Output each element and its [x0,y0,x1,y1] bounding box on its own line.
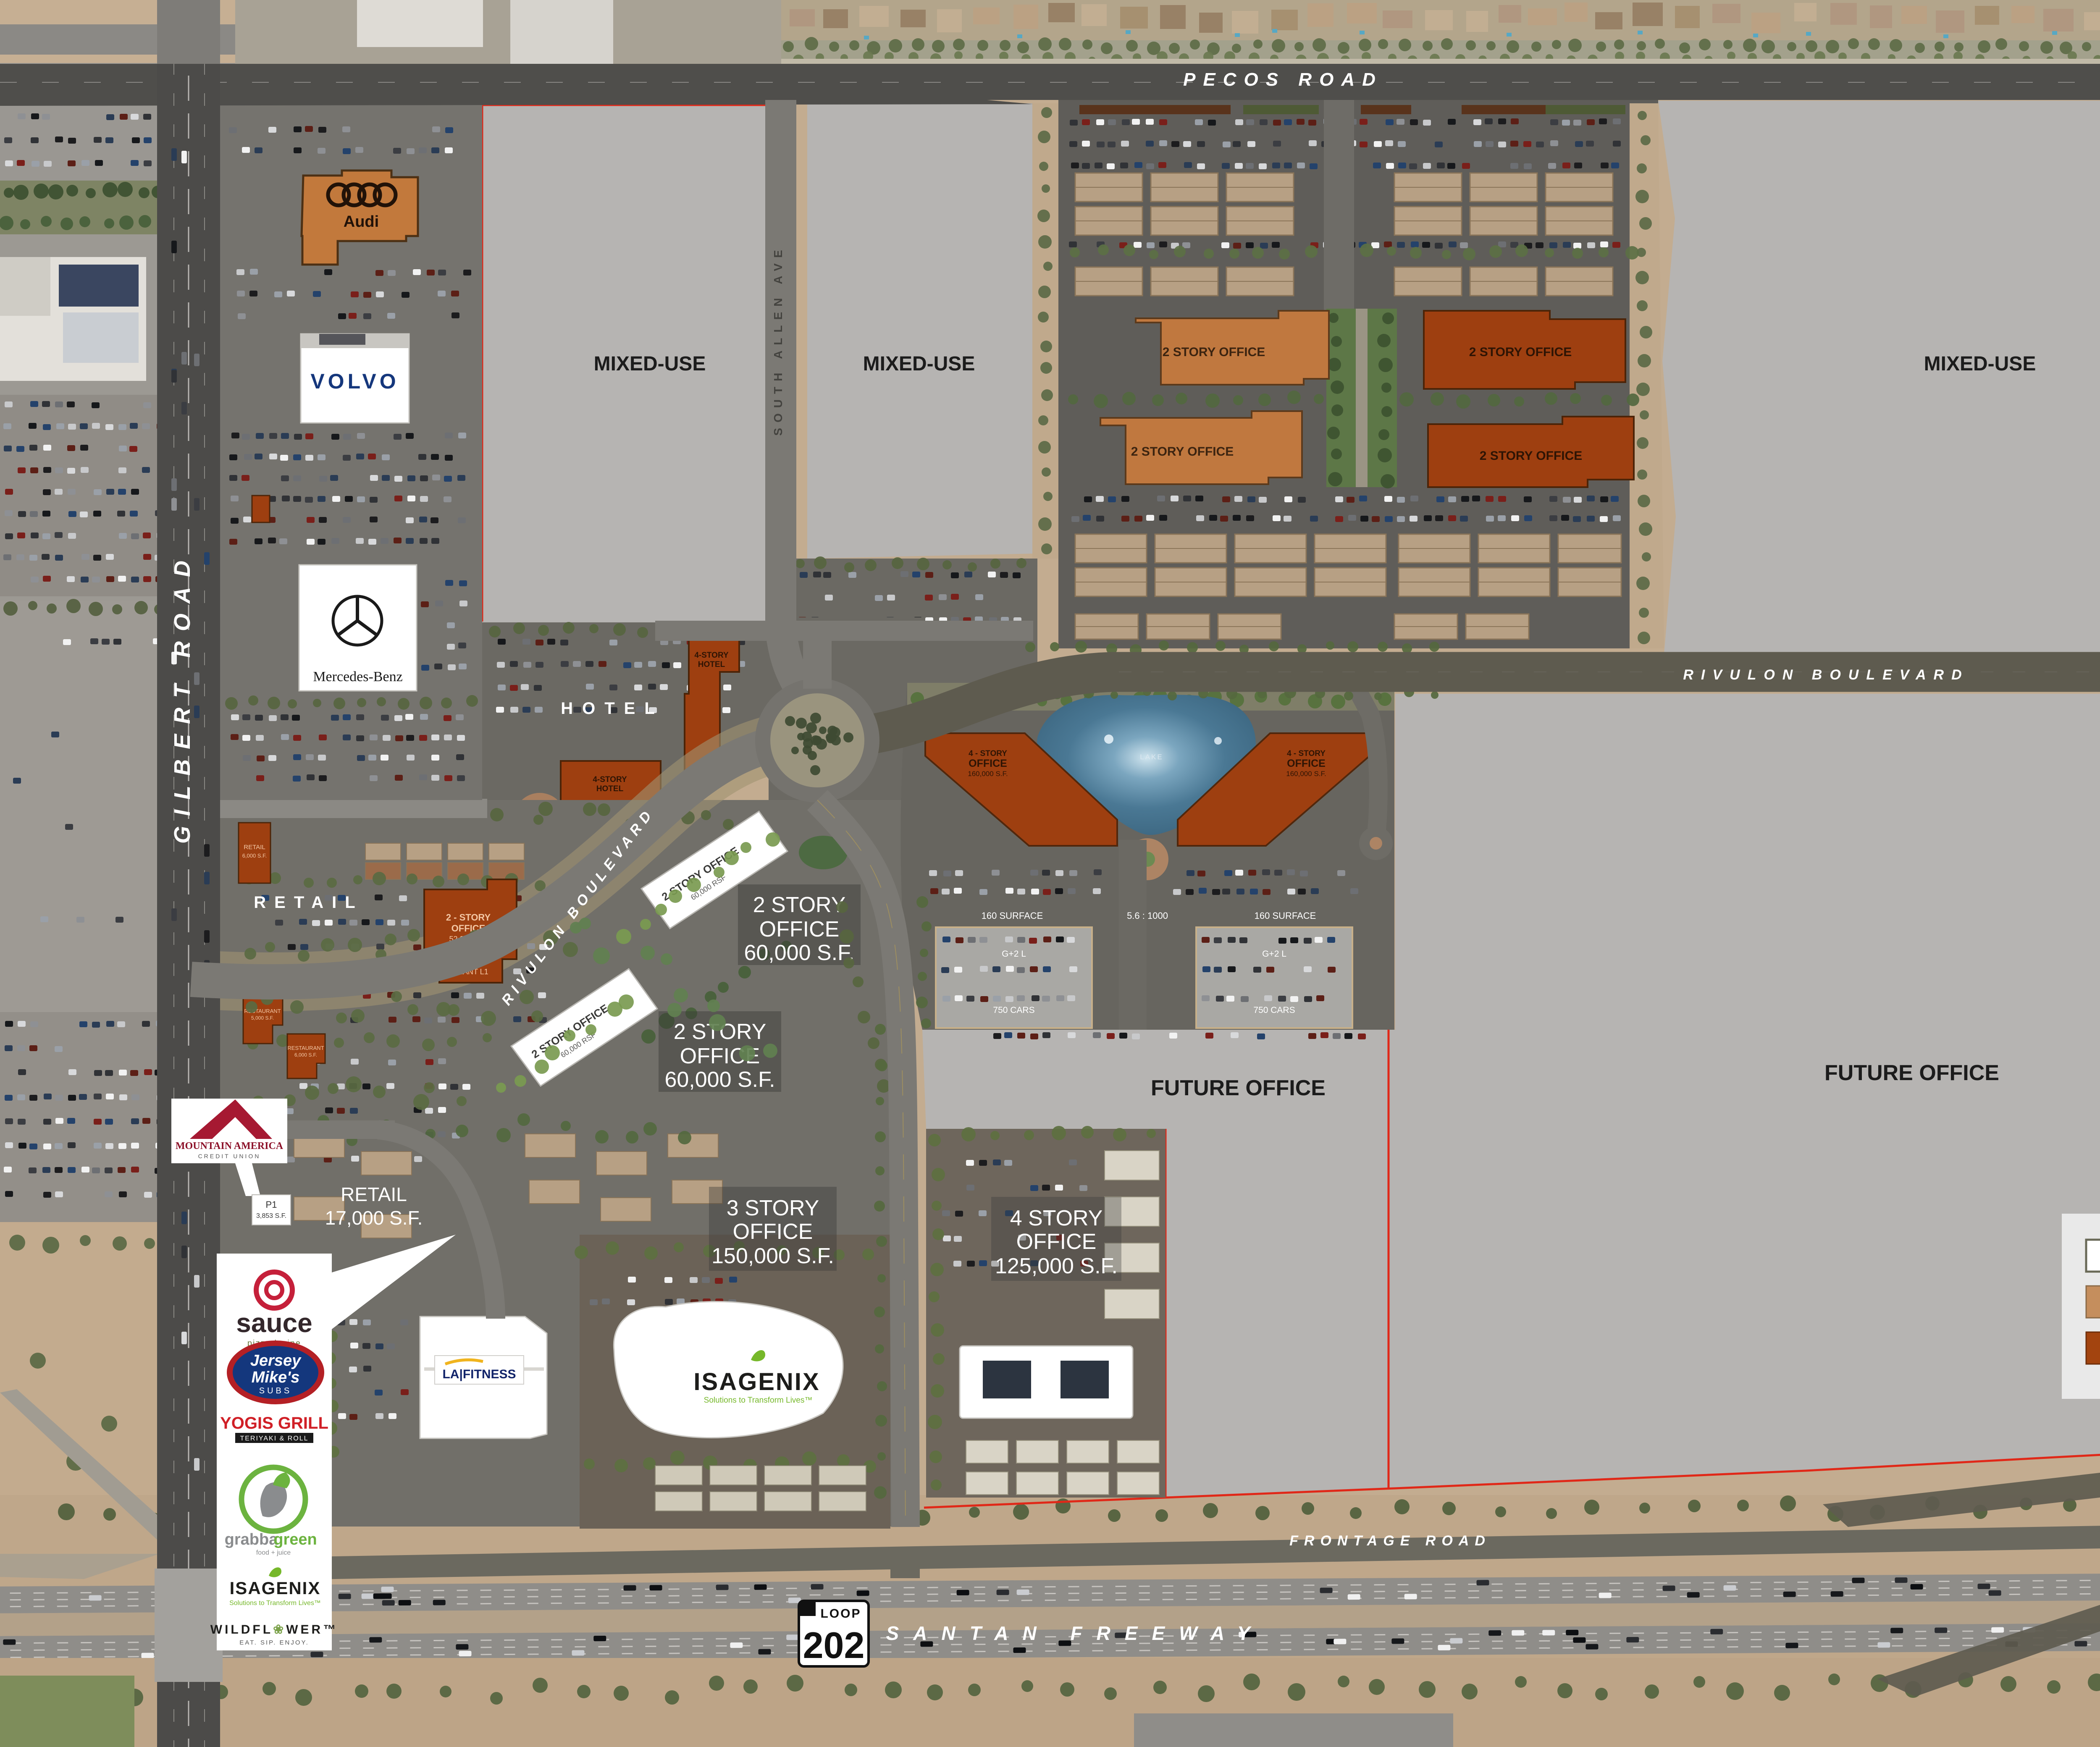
svg-text:Jersey: Jersey [250,1352,302,1369]
svg-text:LAKE: LAKE [1140,753,1163,761]
svg-text:Audi: Audi [344,213,379,231]
svg-text:4-STORY: 4-STORY [593,775,627,784]
svg-text:Mercedes-Benz: Mercedes-Benz [313,669,402,685]
svg-text:OFFICE: OFFICE [759,917,840,942]
svg-text:YOGIS GRILL: YOGIS GRILL [220,1414,328,1432]
svg-text:17,000 S.F.: 17,000 S.F. [325,1207,423,1229]
svg-text:2 - STORY: 2 - STORY [446,912,491,923]
svg-text:3,853 S.F.: 3,853 S.F. [256,1212,286,1220]
svg-text:OFFICE: OFFICE [1287,758,1326,769]
svg-text:SANTAN FREEWAY: SANTAN FREEWAY [886,1622,1264,1644]
svg-text:VOLVO: VOLVO [310,370,399,393]
svg-text:2 STORY OFFICE: 2 STORY OFFICE [1469,345,1572,359]
svg-text:HOTEL: HOTEL [698,660,725,669]
svg-text:LA|FITNESS: LA|FITNESS [442,1367,516,1381]
svg-text:OFFICE: OFFICE [1016,1230,1097,1254]
svg-text:ISAGENIX: ISAGENIX [230,1578,321,1598]
svg-text:202: 202 [803,1624,865,1666]
svg-text:RETAIL: RETAIL [254,893,363,912]
svg-text:PECOS ROAD: PECOS ROAD [1183,69,1383,90]
svg-text:HOTEL: HOTEL [596,784,624,793]
svg-text:OFFICE: OFFICE [969,758,1007,769]
svg-text:RETAIL: RETAIL [341,1183,407,1205]
svg-text:160 SURFACE: 160 SURFACE [982,910,1043,921]
svg-text:LOOP: LOOP [820,1607,861,1621]
svg-text:RETAIL: RETAIL [244,844,265,851]
svg-text:6,000 S.F.: 6,000 S.F. [294,1052,317,1058]
svg-text:Solutions to Transform Lives™: Solutions to Transform Lives™ [704,1396,813,1405]
svg-text:5,000 S.F.: 5,000 S.F. [251,1015,274,1021]
svg-text:2 STORY OFFICE: 2 STORY OFFICE [1480,449,1583,463]
svg-text:food + juice: food + juice [256,1549,291,1556]
svg-text:WILDFL❀WER™: WILDFL❀WER™ [210,1623,338,1637]
svg-text:4 - STORY: 4 - STORY [1287,749,1326,758]
svg-text:60,000 S.F.: 60,000 S.F. [744,941,854,965]
svg-text:HOTEL: HOTEL [561,699,664,718]
svg-text:160 SURFACE: 160 SURFACE [1255,910,1316,921]
svg-text:2 STORY OFFICE: 2 STORY OFFICE [1131,445,1234,459]
svg-text:FUTURE OFFICE: FUTURE OFFICE [1824,1061,1999,1085]
svg-text:2 STORY: 2 STORY [753,893,846,917]
svg-text:MOUNTAIN AMERICA: MOUNTAIN AMERICA [176,1141,283,1152]
svg-text:Solutions to Transform Lives™: Solutions to Transform Lives™ [229,1600,321,1607]
svg-text:160,000 S.F.: 160,000 S.F. [968,770,1008,778]
svg-text:SOUTH ALLEN AVE: SOUTH ALLEN AVE [772,244,785,435]
svg-text:grabba: grabba [225,1531,278,1548]
svg-text:Mike's: Mike's [252,1369,300,1386]
svg-text:RIVULON BOULEVARD: RIVULON BOULEVARD [1683,667,1969,683]
svg-text:60,000 S.F.: 60,000 S.F. [664,1068,775,1092]
svg-text:RESTAURANT: RESTAURANT [287,1045,324,1051]
svg-text:4 STORY: 4 STORY [1010,1206,1103,1230]
svg-text:green: green [273,1531,317,1548]
svg-text:MIXED-USE: MIXED-USE [1924,353,2036,375]
svg-text:G+2 L: G+2 L [1002,949,1026,959]
svg-text:6,000 S.F.: 6,000 S.F. [242,853,267,859]
svg-text:ISAGENIX: ISAGENIX [693,1368,820,1396]
svg-text:OFFICE: OFFICE [733,1220,813,1244]
svg-text:G+2 L: G+2 L [1262,949,1286,959]
svg-text:CREDIT UNION: CREDIT UNION [198,1153,261,1159]
svg-text:3 STORY: 3 STORY [727,1196,819,1220]
svg-text:MIXED-USE: MIXED-USE [594,353,706,375]
svg-text:4-STORY: 4-STORY [694,651,729,660]
svg-text:GILBERT ROAD: GILBERT ROAD [170,551,195,844]
svg-text:4 - STORY: 4 - STORY [969,749,1007,758]
svg-text:160,000 S.F.: 160,000 S.F. [1286,770,1326,778]
svg-text:P1: P1 [266,1199,277,1210]
svg-text:FUTURE OFFICE: FUTURE OFFICE [1151,1076,1326,1100]
svg-text:125,000 S.F.: 125,000 S.F. [995,1254,1118,1278]
svg-text:150,000 S.F.: 150,000 S.F. [711,1244,834,1268]
svg-text:5.6 : 1000: 5.6 : 1000 [1127,910,1168,921]
svg-text:sauce: sauce [236,1308,312,1338]
svg-text:750 CARS: 750 CARS [1253,1005,1295,1015]
svg-text:2 STORY OFFICE: 2 STORY OFFICE [1163,345,1265,359]
svg-text:FRONTAGE ROAD: FRONTAGE ROAD [1289,1533,1491,1549]
svg-text:EAT. SIP. ENJOY.: EAT. SIP. ENJOY. [239,1639,309,1646]
svg-text:750 CARS: 750 CARS [993,1005,1034,1015]
svg-text:TERIYAKI & ROLL: TERIYAKI & ROLL [240,1435,308,1442]
svg-text:MIXED-USE: MIXED-USE [863,353,975,375]
svg-text:SUBS: SUBS [259,1386,292,1396]
